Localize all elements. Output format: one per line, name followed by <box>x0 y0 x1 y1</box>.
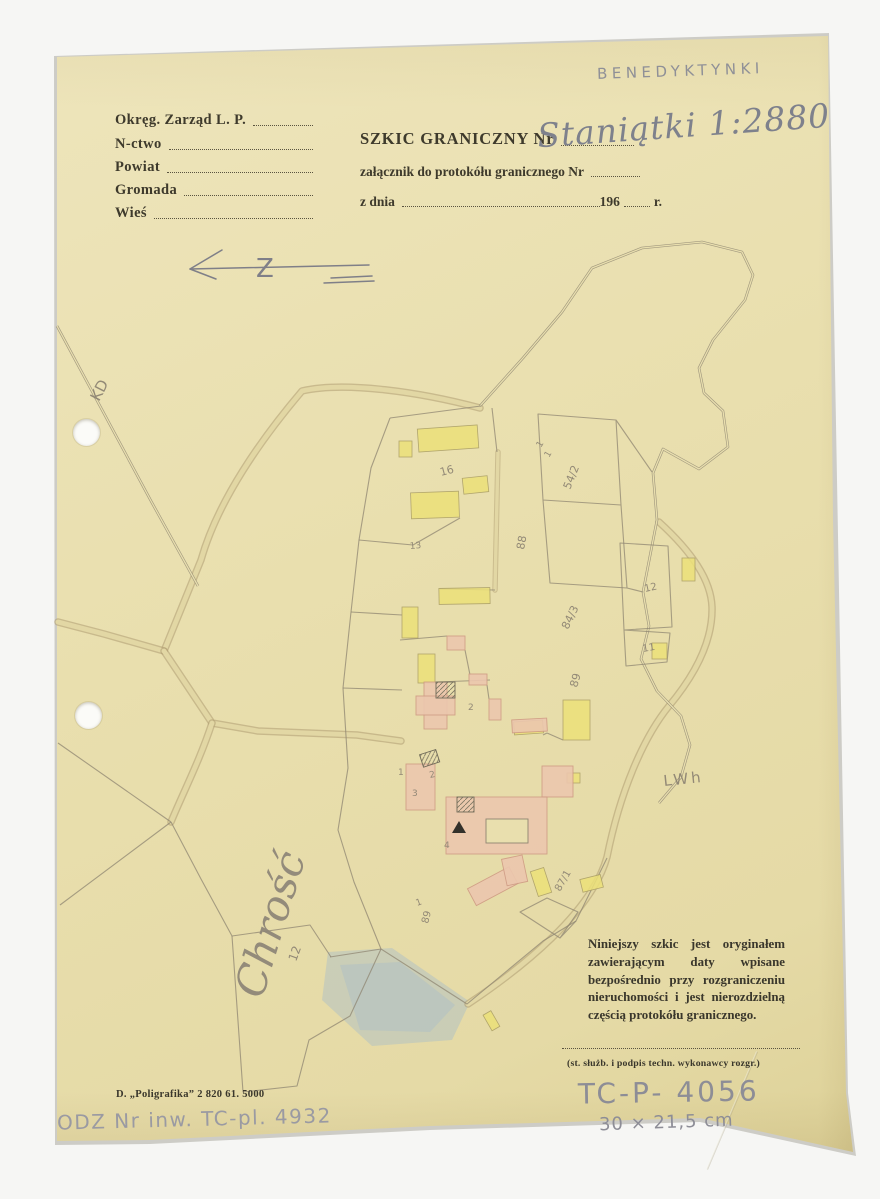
form-row-okreg: Okręg. Zarząd L. P. <box>115 106 313 129</box>
dimensions-handwritten: 30 × 21,5 cm <box>599 1110 734 1136</box>
form-row-wies: Wieś <box>115 199 313 222</box>
dotted-leader <box>402 205 600 207</box>
scanned-boundary-sketch: BENEDYKTYNKI Okręg. Zarząd L. P. N-ctwo … <box>0 0 880 1199</box>
date-prefix: z dnia <box>360 194 395 210</box>
date-year: 196 <box>600 194 620 210</box>
signature-dotted-line <box>562 1048 800 1049</box>
form-row-powiat: Powiat <box>115 153 313 176</box>
header-form: Okręg. Zarząd L. P. N-ctwo Powiat Gromad… <box>115 106 313 222</box>
dotted-leader <box>184 194 313 196</box>
date-suffix: r. <box>654 194 662 210</box>
dotted-leader <box>167 171 313 173</box>
form-label: Okręg. Zarząd L. P. <box>115 112 246 129</box>
form-label: Wieś <box>115 205 147 222</box>
sketch-title: SZKIC GRANICZNY Nr <box>360 129 554 149</box>
dotted-leader <box>154 217 313 219</box>
form-label: N-ctwo <box>115 136 162 153</box>
dotted-leader <box>169 148 313 150</box>
dotted-leader <box>253 124 313 126</box>
form-row-gromada: Gromada <box>115 176 313 199</box>
form-label: Powiat <box>115 159 160 176</box>
dotted-leader <box>624 205 650 207</box>
signature-caption: (st. służb. i podpis techn. wykonawcy ro… <box>567 1058 760 1069</box>
date-row: z dnia 196 r. <box>360 194 662 210</box>
originality-note: Niniejszy szkic jest oryginałem zawieraj… <box>588 936 785 1025</box>
attachment-label: załącznik do protokółu granicznego Nr <box>360 164 584 180</box>
form-label: Gromada <box>115 182 177 199</box>
punch-hole-top <box>73 419 100 446</box>
attachment-row: załącznik do protokółu granicznego Nr <box>360 164 640 180</box>
punch-hole-bottom <box>75 702 102 729</box>
dotted-leader <box>591 175 640 177</box>
catalog-number-handwritten: TC-P- 4056 <box>578 1074 760 1110</box>
form-row-nctwo: N-ctwo <box>115 129 313 152</box>
printer-imprint: D. „Poligrafika” 2 820 61. 5000 <box>116 1089 264 1100</box>
